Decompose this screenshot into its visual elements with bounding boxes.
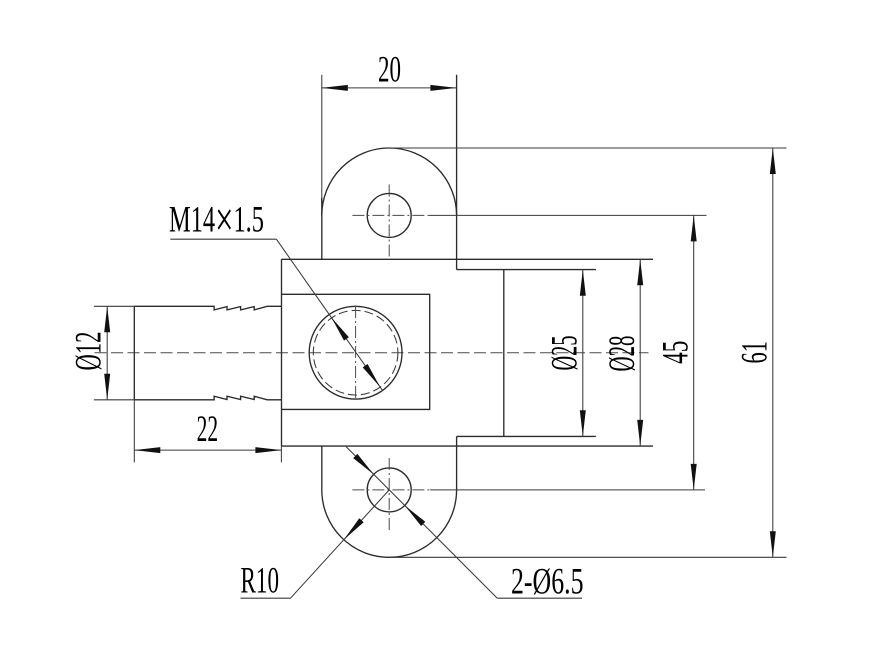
svg-text:22: 22: [197, 409, 219, 450]
svg-text:R10: R10: [241, 560, 280, 601]
svg-text:20: 20: [378, 50, 401, 91]
svg-text:M14×1.5: M14×1.5: [169, 191, 264, 247]
svg-text:45: 45: [656, 341, 697, 364]
svg-text:Ø28: Ø28: [602, 336, 643, 372]
svg-text:2-Ø6.5: 2-Ø6.5: [511, 562, 584, 603]
svg-text:Ø25: Ø25: [545, 336, 586, 371]
svg-text:Ø12: Ø12: [68, 332, 109, 371]
svg-text:61: 61: [735, 341, 776, 364]
